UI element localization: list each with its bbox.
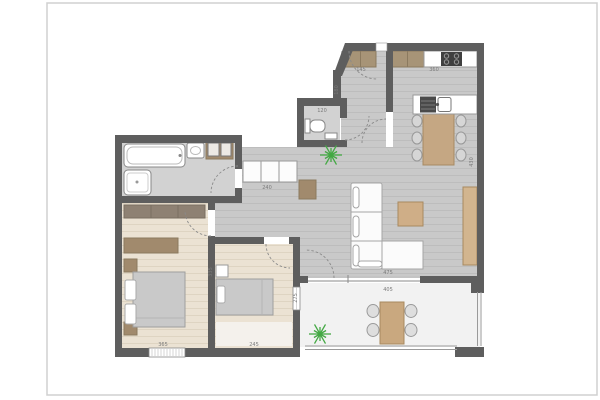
dimension-label: 245 [249, 342, 259, 348]
dimension-label: 360 [429, 67, 439, 73]
pillow [217, 286, 225, 303]
wall-segment [208, 236, 215, 348]
dining-chair [412, 132, 422, 144]
nightstand [124, 259, 137, 272]
toilet-tank [305, 119, 310, 133]
double-bed [133, 272, 185, 327]
dryer-icon [221, 143, 231, 156]
dining-chair [456, 149, 466, 161]
island-basin [438, 98, 451, 112]
corridor-floor-arm [215, 203, 242, 237]
wc-hand-basin [325, 133, 337, 139]
dining-chair [412, 149, 422, 161]
wall-segment [208, 196, 215, 210]
dimension-label: 240 [262, 185, 272, 191]
dimension-label: 335 [208, 267, 214, 277]
toilet-bowl [310, 120, 325, 132]
dimension-label: 475 [383, 270, 393, 276]
terrace-chair [367, 305, 379, 318]
wall-segment [386, 43, 393, 112]
wall-segment [471, 283, 484, 293]
pillow [125, 304, 136, 324]
corridor-closet [243, 161, 297, 182]
dimension-label: 120 [317, 108, 327, 114]
living-cabinet [299, 180, 316, 199]
dining-table [423, 112, 454, 165]
terrace-chair [405, 305, 417, 318]
wall-segment [115, 135, 242, 143]
wall-segment [115, 196, 242, 203]
dimension-label: 365 [158, 342, 168, 348]
dimension-label: 180 [334, 85, 340, 95]
wardrobe [124, 205, 205, 218]
wall-segment [346, 43, 484, 51]
pillow [125, 280, 136, 300]
floor-plan-page: 145360120240365245475405430180335275 [0, 0, 600, 400]
wall-segment [297, 140, 347, 147]
terrace-chair [367, 324, 379, 337]
wall-segment [115, 348, 300, 357]
nightstand [216, 265, 228, 277]
wall-segment [300, 276, 308, 283]
sideboard [463, 187, 477, 265]
dining-chair [456, 115, 466, 127]
dimension-label: 145 [356, 67, 366, 73]
shower-drain-icon [136, 181, 139, 184]
dimension-label: 405 [383, 287, 393, 293]
dining-chair [456, 132, 466, 144]
vanity-sink [187, 143, 204, 158]
coffee-table [398, 202, 423, 226]
wall-segment [340, 98, 347, 118]
wall-segment [455, 347, 484, 357]
wall-segment [235, 143, 242, 169]
cooktop [441, 52, 462, 66]
washer-icon [208, 143, 219, 156]
sofa-pillow [353, 216, 359, 237]
wall-segment [297, 98, 304, 147]
dimension-label: 430 [469, 157, 475, 167]
wall-segment [289, 237, 300, 244]
wall-segment [477, 43, 484, 293]
wall-segment [420, 276, 477, 283]
floor-plan-drawing: 145360120240365245475405430180335275 [0, 0, 600, 400]
terrace-chair [405, 324, 417, 337]
sofa-chaise [382, 241, 423, 269]
entrance-door [376, 43, 387, 51]
terrace-table [380, 302, 404, 344]
wall-segment [115, 135, 122, 357]
wall-segment [215, 237, 264, 244]
dining-chair [412, 115, 422, 127]
sofa-pillow [358, 261, 382, 267]
island-faucet-icon [436, 103, 439, 106]
bathtub-faucet-icon [179, 154, 182, 157]
dimension-label: 275 [293, 293, 299, 303]
sofa-pillow [353, 187, 359, 208]
dresser [124, 238, 178, 253]
